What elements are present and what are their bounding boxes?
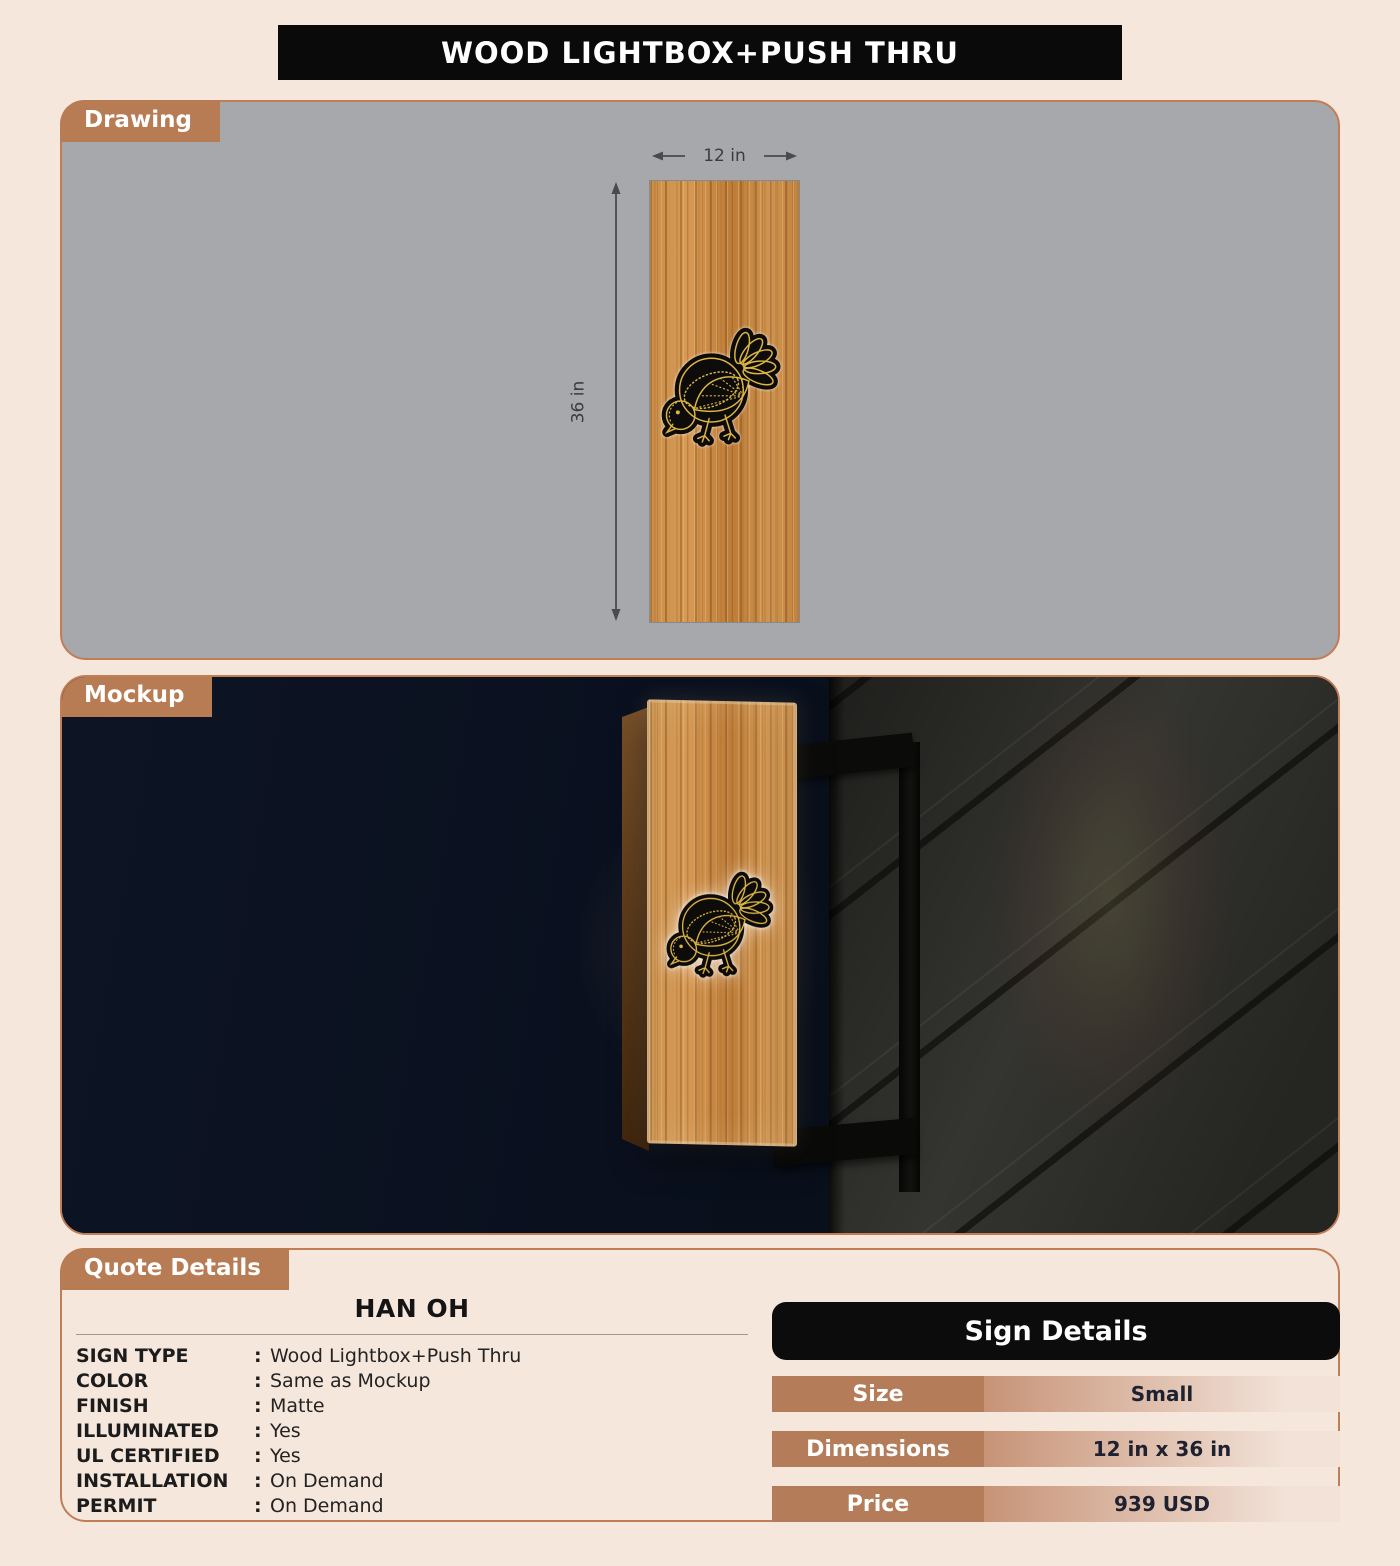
spec-label: PERMIT bbox=[76, 1494, 254, 1519]
width-dimension: 12 in bbox=[650, 146, 799, 166]
sign-details-title: Sign Details bbox=[772, 1302, 1340, 1360]
spec-value: Yes bbox=[270, 1419, 301, 1444]
sign-side-face bbox=[622, 707, 649, 1151]
divider-line bbox=[76, 1334, 748, 1335]
spec-colon: : bbox=[254, 1369, 270, 1394]
sign-details-row-dimensions: Dimensions 12 in x 36 in bbox=[772, 1431, 1340, 1467]
spec-label: INSTALLATION bbox=[76, 1469, 254, 1494]
width-dimension-label: 12 in bbox=[703, 146, 746, 166]
sign-details-label: Dimensions bbox=[772, 1431, 984, 1467]
mockup-tab-label: Mockup bbox=[60, 675, 212, 717]
spec-row-permit: PERMIT : On Demand bbox=[76, 1494, 748, 1519]
spec-row-finish: FINISH : Matte bbox=[76, 1394, 748, 1419]
drawing-tab-label: Drawing bbox=[60, 100, 220, 142]
chicken-logo-illuminated bbox=[664, 866, 782, 984]
spec-row-illuminated: ILLUMINATED : Yes bbox=[76, 1419, 748, 1444]
quote-sheet-page: WOOD LIGHTBOX+PUSH THRU Drawing 12 in 36… bbox=[0, 0, 1400, 1566]
spec-value: Matte bbox=[270, 1394, 325, 1419]
page-title: WOOD LIGHTBOX+PUSH THRU bbox=[441, 36, 959, 70]
height-dimension: 36 in bbox=[608, 181, 624, 622]
height-dimension-label: 36 in bbox=[568, 380, 588, 423]
wood-plank-drawing bbox=[650, 181, 799, 622]
spec-colon: : bbox=[254, 1469, 270, 1494]
spec-row-sign-type: SIGN TYPE : Wood Lightbox+Push Thru bbox=[76, 1344, 748, 1369]
spec-label: ILLUMINATED bbox=[76, 1419, 254, 1444]
sign-details-value: 12 in x 36 in bbox=[984, 1431, 1340, 1467]
sign-details-label: Size bbox=[772, 1376, 984, 1412]
spec-row-color: COLOR : Same as Mockup bbox=[76, 1369, 748, 1394]
spec-colon: : bbox=[254, 1419, 270, 1444]
sign-details-value: Small bbox=[984, 1376, 1340, 1412]
spec-label: UL CERTIFIED bbox=[76, 1444, 254, 1469]
page-title-bar: WOOD LIGHTBOX+PUSH THRU bbox=[278, 25, 1122, 80]
quote-tab-label: Quote Details bbox=[60, 1248, 289, 1290]
spec-label: COLOR bbox=[76, 1369, 254, 1394]
vertical-dimension-arrow-icon bbox=[608, 181, 624, 622]
spec-label: SIGN TYPE bbox=[76, 1344, 254, 1369]
chicken-logo-graphic bbox=[659, 323, 790, 451]
sign-details-card: Sign Details Size Small Dimensions 12 in… bbox=[772, 1302, 1340, 1522]
spec-colon: : bbox=[254, 1444, 270, 1469]
spec-colon: : bbox=[254, 1344, 270, 1369]
sign-front-face bbox=[647, 699, 797, 1146]
arrow-left-icon bbox=[650, 150, 686, 162]
spec-label: FINISH bbox=[76, 1394, 254, 1419]
spec-colon: : bbox=[254, 1494, 270, 1519]
spec-value: On Demand bbox=[270, 1494, 384, 1519]
mockup-panel: Mockup bbox=[60, 675, 1340, 1235]
spec-value: Wood Lightbox+Push Thru bbox=[270, 1344, 521, 1369]
quote-details-panel: Quote Details HAN OH SIGN TYPE : Wood Li… bbox=[60, 1248, 1340, 1522]
spec-row-installation: INSTALLATION : On Demand bbox=[76, 1469, 748, 1494]
sign-details-label: Price bbox=[772, 1486, 984, 1522]
spec-colon: : bbox=[254, 1394, 270, 1419]
sign-details-row-price: Price 939 USD bbox=[772, 1486, 1340, 1522]
drawing-panel: Drawing 12 in 36 in bbox=[60, 100, 1340, 660]
spec-row-ul-certified: UL CERTIFIED : Yes bbox=[76, 1444, 748, 1469]
spec-list: SIGN TYPE : Wood Lightbox+Push Thru COLO… bbox=[76, 1344, 748, 1519]
sign-details-row-size: Size Small bbox=[772, 1376, 1340, 1412]
spec-value: Yes bbox=[270, 1444, 301, 1469]
customer-name: HAN OH bbox=[76, 1294, 748, 1323]
spec-value: Same as Mockup bbox=[270, 1369, 431, 1394]
spec-value: On Demand bbox=[270, 1469, 384, 1494]
quote-summary: HAN OH SIGN TYPE : Wood Lightbox+Push Th… bbox=[76, 1294, 748, 1519]
height-dimension-labelwrap: 36 in bbox=[558, 181, 598, 622]
sign-details-value: 939 USD bbox=[984, 1486, 1340, 1522]
arrow-right-icon bbox=[763, 150, 799, 162]
